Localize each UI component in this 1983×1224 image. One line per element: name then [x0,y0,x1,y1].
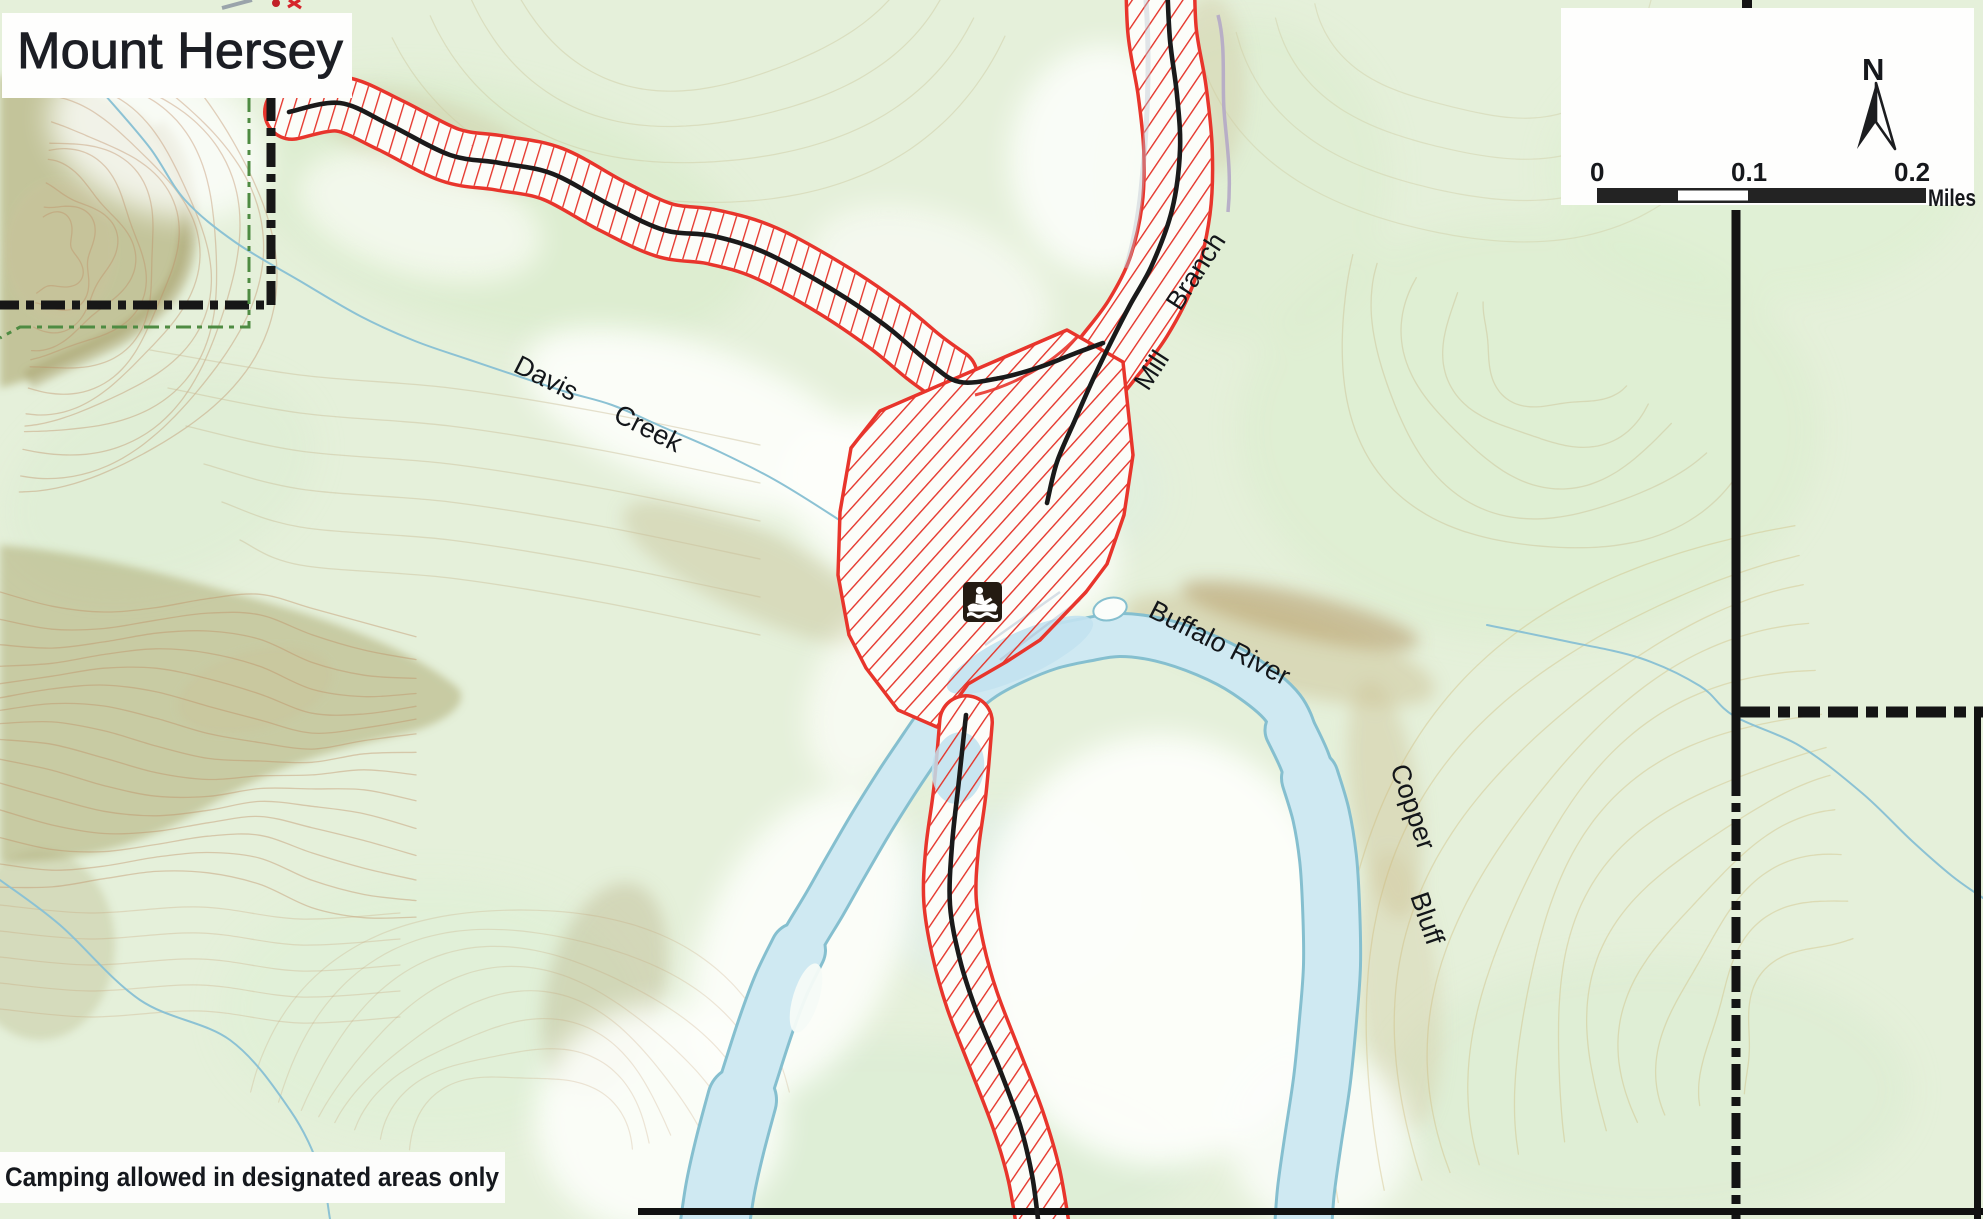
svg-text:Miles: Miles [1928,185,1976,212]
svg-text:0: 0 [1590,157,1604,187]
svg-text:N: N [1862,52,1884,87]
svg-text:0.2: 0.2 [1894,157,1930,187]
svg-text:Mount Hersey: Mount Hersey [17,22,343,79]
svg-text:0.1: 0.1 [1731,157,1767,187]
svg-text:Camping allowed in designated: Camping allowed in designated areas only [5,1162,499,1192]
